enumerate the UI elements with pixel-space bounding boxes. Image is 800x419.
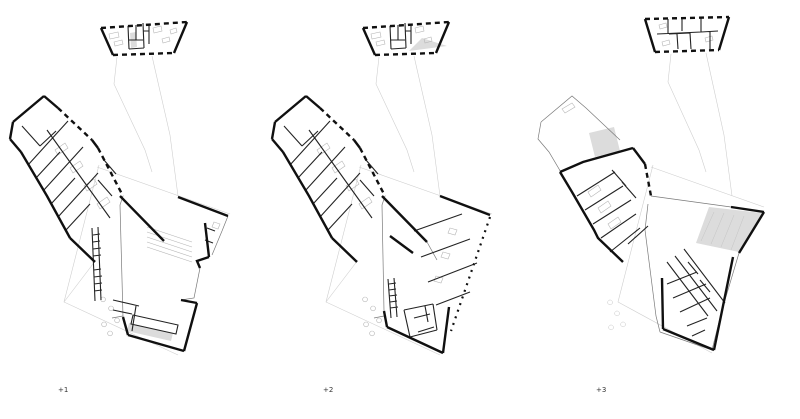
floor-plan-level-1: +1 [10,22,230,394]
level-label: +2 [323,386,333,394]
hall-column-edge [451,217,490,331]
hall-interior-walls [388,214,477,337]
hall-outline [382,196,490,353]
hall-thin-edges [374,196,437,318]
level-label: +3 [596,386,606,394]
hall-furniture-and-trees [363,228,457,336]
site-contour-lines [618,53,764,353]
hall-thin-edges [112,196,228,318]
small-block-furniture [659,23,713,46]
floor-plan-sheet: +1 +2 [0,0,800,419]
floor-plan-level-3: +3 [538,17,764,394]
small-block-interior-walls [657,17,718,49]
hall-interior-walls [667,249,725,336]
wing-window-wall [645,164,651,196]
floor-plan-level-2: +2 [272,22,492,394]
hall-stairs-and-trees [101,222,220,336]
level-label: +1 [58,386,68,394]
wing-room-walls [577,170,648,252]
floor-plans-svg: +1 +2 [0,0,800,419]
hall-interior-walls [92,227,215,334]
